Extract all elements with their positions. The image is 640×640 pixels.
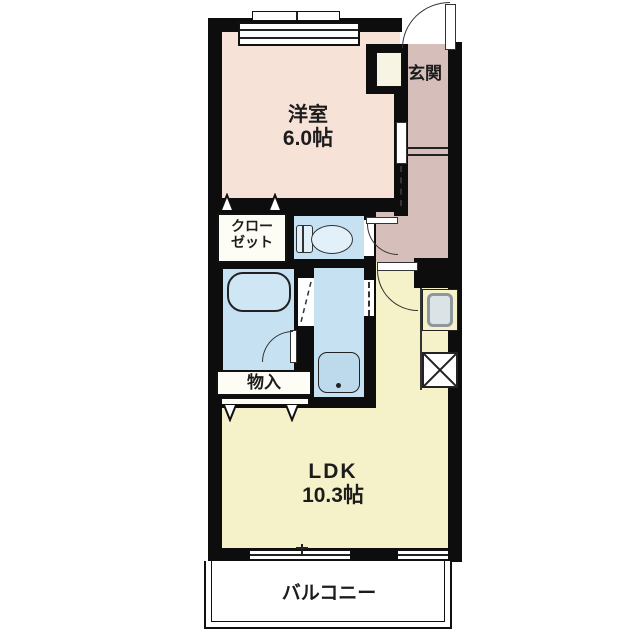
wall-kitchen-top xyxy=(414,258,448,288)
shoe-cabinet xyxy=(376,52,402,87)
window-balcony-left-mid xyxy=(250,554,350,556)
storage-door-mark-left-icon xyxy=(222,404,238,422)
entrance-label: 玄関 xyxy=(402,64,448,84)
closet-door-mark-right-icon xyxy=(267,193,283,211)
bathtub-icon xyxy=(227,272,291,312)
kitchen-sink-icon xyxy=(427,293,453,327)
storage-label: 物入 xyxy=(216,373,312,393)
storage-door-mark-right-icon xyxy=(284,404,300,422)
window-top xyxy=(238,22,360,46)
refrigerator-space xyxy=(422,352,458,388)
refrigerator-space-x-icon xyxy=(424,354,456,386)
window-balcony-left-tick-v xyxy=(301,544,303,554)
closet-label-line1: クロー xyxy=(218,218,286,234)
toilet-door-leaf xyxy=(366,217,398,224)
window-top-frame-divider xyxy=(296,12,298,20)
entrance-door-swing xyxy=(402,2,450,48)
window-top-line1 xyxy=(240,29,358,31)
ldk-label: LDK 10.3帖 xyxy=(283,460,383,508)
western-sliding-door-track xyxy=(400,166,402,206)
window-balcony-left-tick-h xyxy=(296,547,308,549)
entrance-step-line2 xyxy=(402,154,448,156)
wall-western-south xyxy=(208,198,408,212)
ldk-size: 10.3帖 xyxy=(283,484,383,508)
western-room-name: 洋室 xyxy=(258,104,358,127)
window-top-line2 xyxy=(240,37,358,39)
bath-folding-door-dash-icon xyxy=(298,278,314,326)
toilet-bowl-icon xyxy=(311,225,353,254)
western-room-size: 6.0帖 xyxy=(258,127,358,151)
bath-folding-door xyxy=(298,278,314,326)
washroom-sliding-door-track xyxy=(368,282,370,316)
closet-door-mark-left-icon xyxy=(219,193,235,211)
closet-label: クロー ゼット xyxy=(218,218,286,250)
ldk-name: LDK xyxy=(283,460,383,484)
western-room-label: 洋室 6.0帖 xyxy=(258,104,358,151)
wall-left xyxy=(208,18,222,562)
entrance-step-line1 xyxy=(402,147,448,149)
washbasin-drain-icon xyxy=(336,383,341,388)
floorplan: 洋室 6.0帖 玄関 クロー ゼット 物入 LDK 10.3帖 バルコニー xyxy=(0,0,640,640)
window-balcony-right-mid xyxy=(398,554,448,556)
western-sliding-door-leaf xyxy=(396,122,407,164)
balcony-label: バルコニー xyxy=(254,583,404,605)
toilet-tank-divider xyxy=(302,226,304,252)
closet-label-line2: ゼット xyxy=(218,234,286,250)
